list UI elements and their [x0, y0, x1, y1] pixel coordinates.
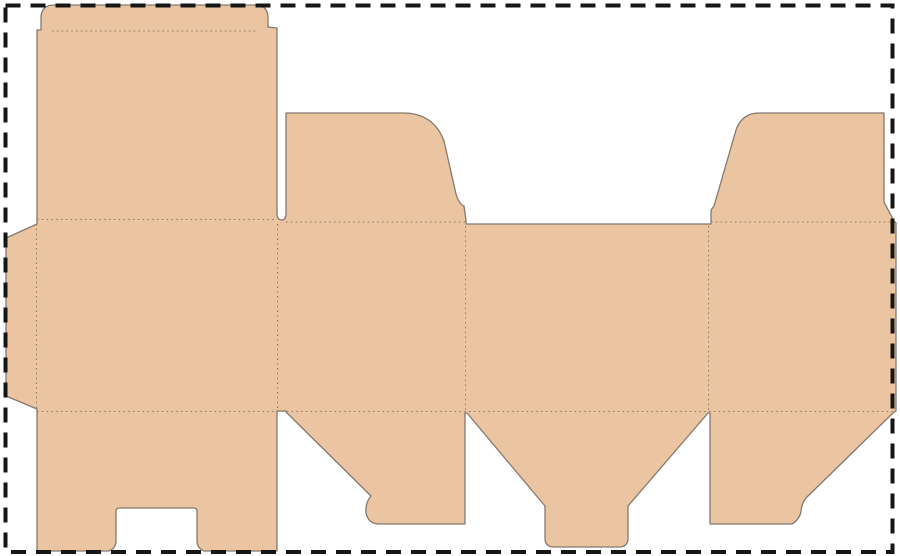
dieline-canvas	[0, 0, 900, 556]
dieline-figure	[0, 0, 900, 556]
